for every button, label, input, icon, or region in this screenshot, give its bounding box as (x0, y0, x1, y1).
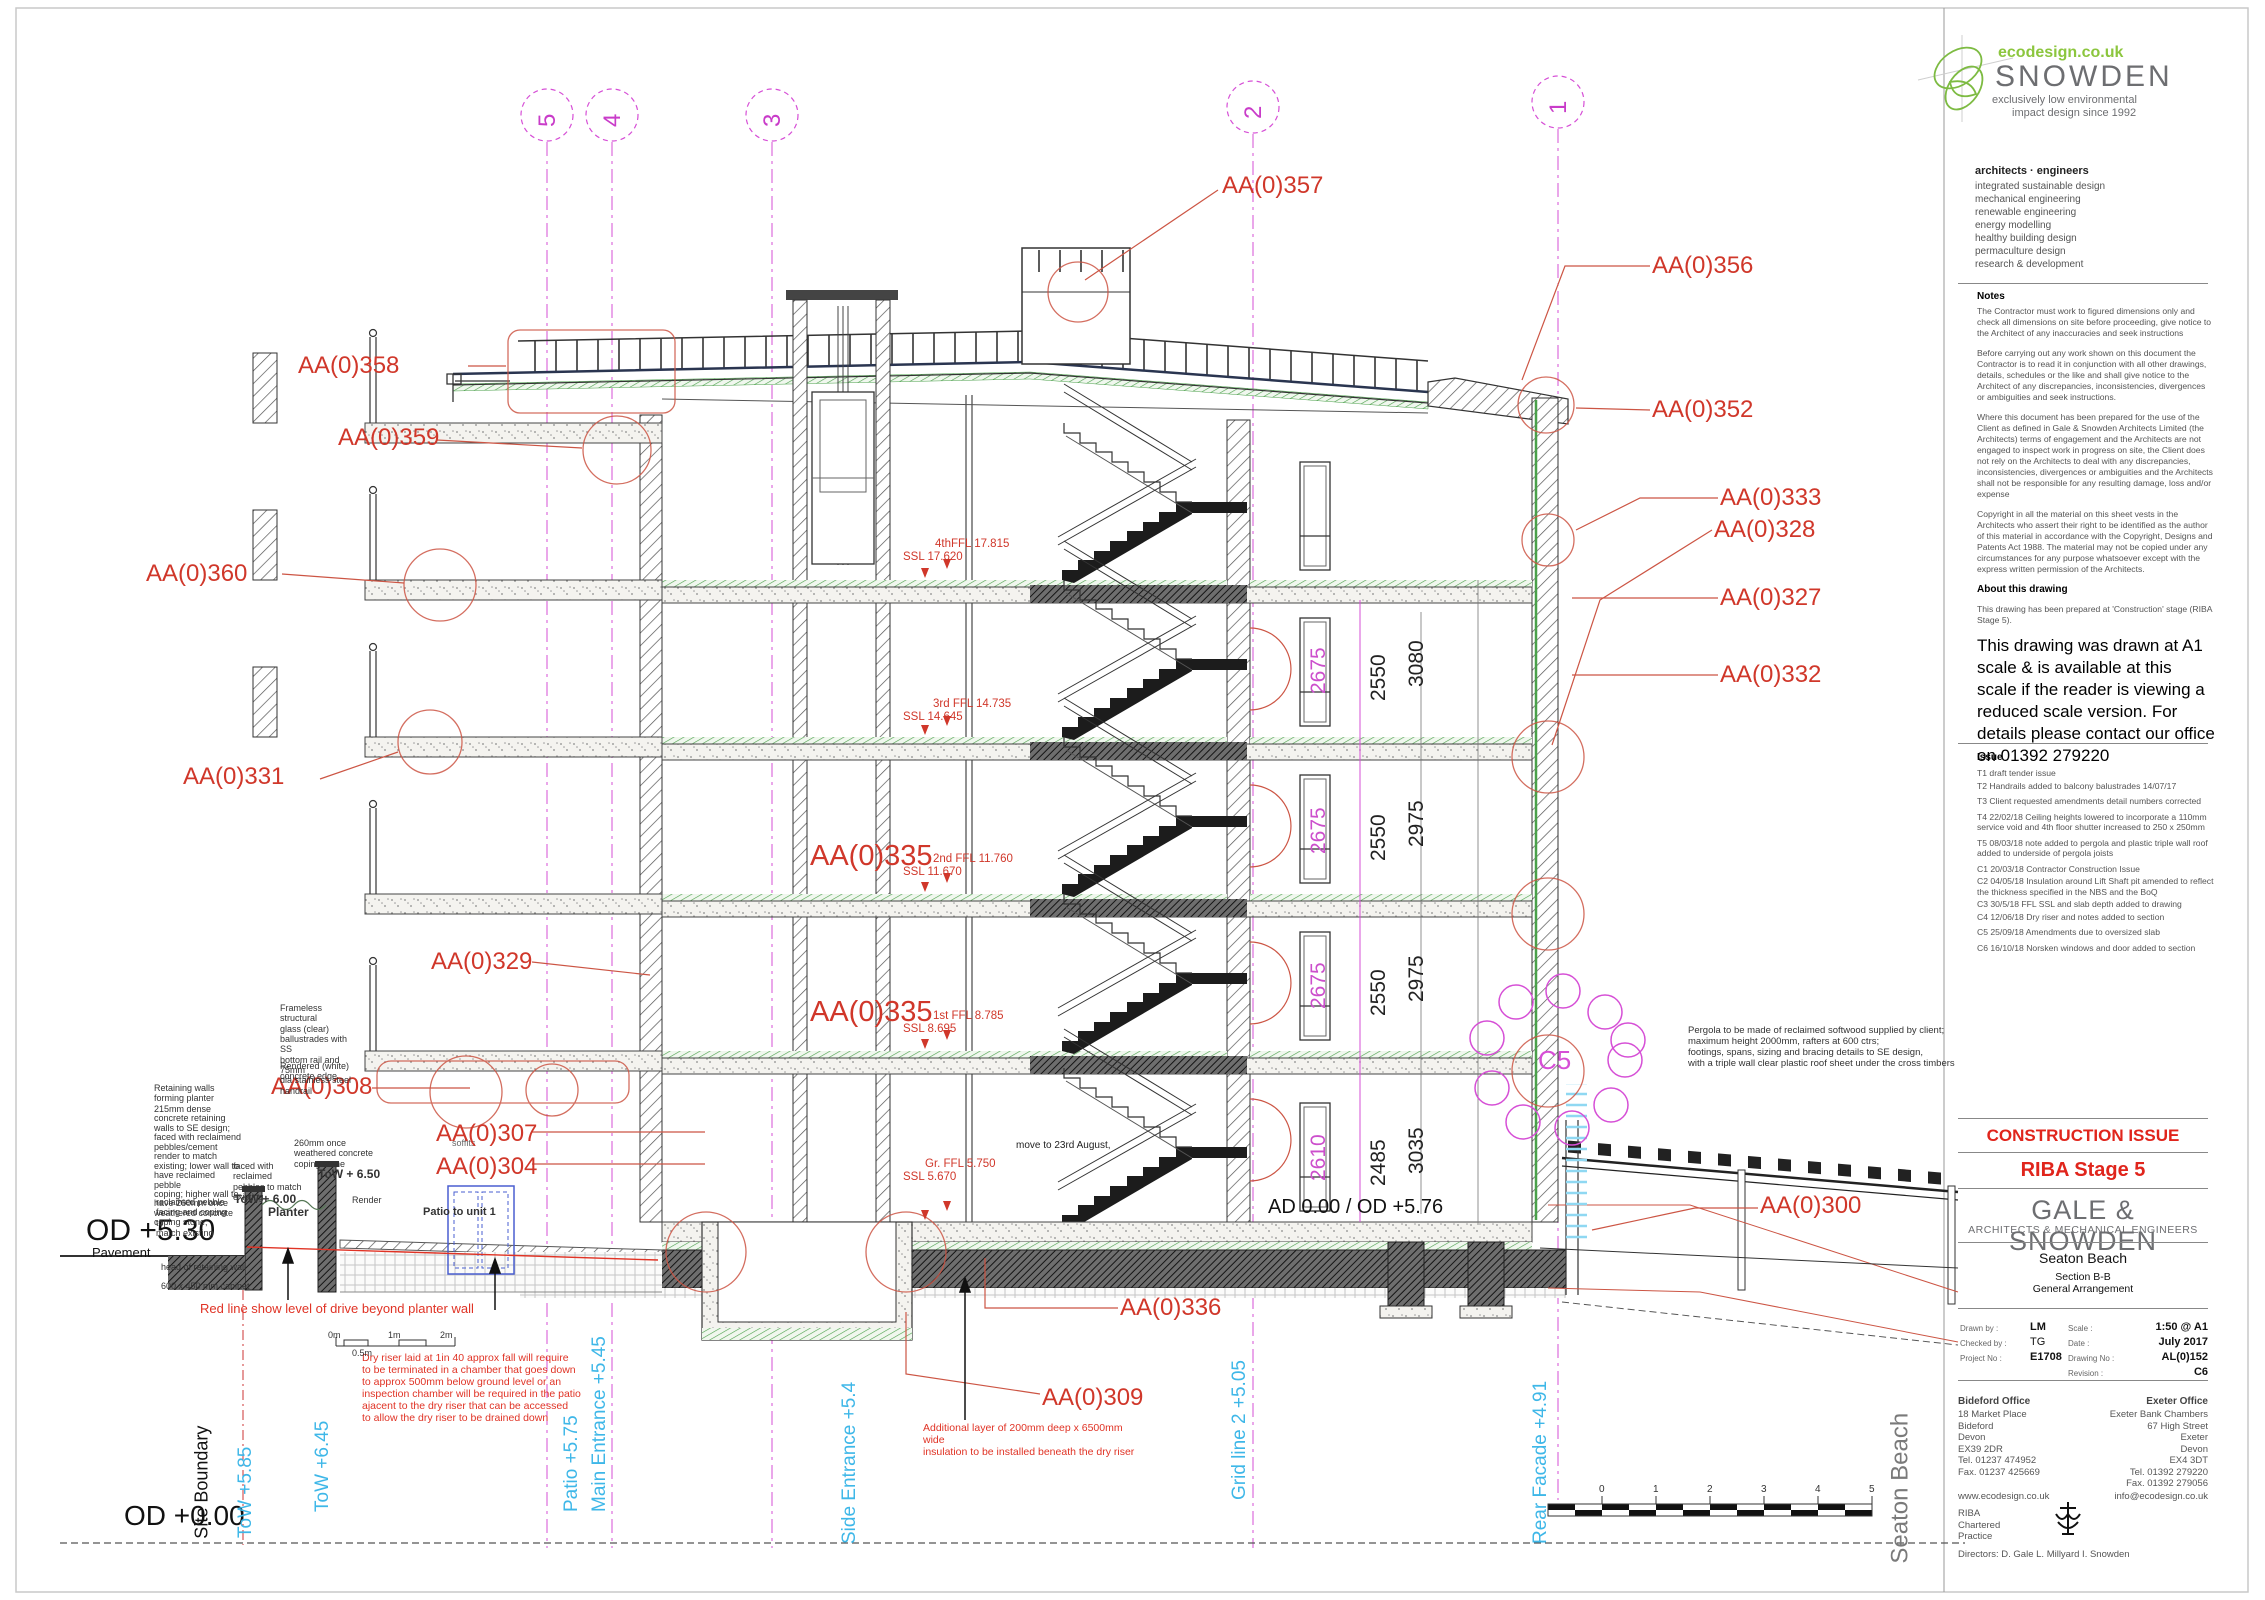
level-ad-od: AD 0.00 / OD +5.76 (1268, 1196, 1443, 1219)
label-site-boundary: Site Boundary (191, 1426, 212, 1539)
dim-f2-2975: 2975 (1406, 955, 1428, 1002)
exeter-office-name: Exeter Office (2088, 1396, 2208, 1408)
grid-label-3: 3 (759, 114, 786, 127)
issue-item: T2 Handrails added to balcony balustrade… (1977, 781, 2217, 792)
revision-cloud-label: C5 (1538, 1046, 1571, 1076)
logo-tagline2: impact design since 1992 (2012, 107, 2136, 120)
notes-p3: Where this document has been prepared fo… (1977, 412, 2215, 500)
scalebar-small-0: 0m (328, 1330, 341, 1340)
issue-item: C6 16/10/18 Norsken windows and door add… (1977, 943, 2217, 954)
directors: Directors: D. Gale L. Millyard I. Snowde… (1958, 1550, 2130, 1561)
date-label: Date : (2068, 1339, 2089, 1348)
floor-slabs (365, 423, 1532, 1074)
note-move: move to 23rd August, (1016, 1140, 1111, 1152)
firm-subtitle: ARCHITECTS & MECHANICAL ENGINEERS (1958, 1224, 2208, 1236)
level-ssl2: SSL 11.670 (903, 866, 962, 879)
svg-text:2: 2 (1707, 1484, 1713, 1495)
grid-label-1: 1 (1545, 101, 1572, 114)
dim-g-2485: 2485 (1368, 1139, 1390, 1186)
note-tow650: ToW + 6.50 (318, 1168, 380, 1182)
sidebar-rule (1958, 1308, 2208, 1309)
issue-item: C1 20/03/18 Contractor Construction Issu… (1977, 864, 2217, 875)
exeter-office-lines: Exeter Bank Chambers 67 High Street Exet… (2088, 1409, 2208, 1490)
scalebar-small-2: 2m (440, 1330, 453, 1340)
level-ssl4: SSL 17.620 (903, 551, 963, 564)
callout-aa336: AA(0)336 (1120, 1294, 1221, 1322)
callout-aa300: AA(0)300 (1760, 1192, 1861, 1220)
level-ssl3: SSL 14.645 (903, 711, 963, 724)
notes-p4: Copyright in all the material on this sh… (1977, 509, 2215, 575)
dry-riser (958, 395, 978, 1240)
stairs (1058, 384, 1247, 1228)
callout-aa352: AA(0)352 (1652, 396, 1753, 424)
services-heading: architects · engineers (1975, 165, 2089, 178)
scalebar-small-05: 0.5m (352, 1348, 372, 1358)
project-no-value: E1708 (2030, 1351, 2062, 1364)
issue-list: T1 draft tender issue T2 Handrails added… (1977, 768, 2217, 953)
checked-by-value: TG (2030, 1336, 2045, 1349)
service-item-1: mechanical engineering (1975, 194, 2081, 206)
dim-f3-2550: 2550 (1368, 814, 1390, 861)
grid-label-2: 2 (1240, 106, 1267, 119)
note-pergola: Pergola to be made of reclaimed softwood… (1688, 1026, 1978, 1070)
note-cabinet: 600 x 450 mm cabinet (161, 1281, 250, 1291)
revision-value: C6 (2130, 1366, 2208, 1379)
dim-g-3035: 3035 (1406, 1127, 1428, 1174)
note-headwall: head of retaining wall (161, 1262, 246, 1272)
svg-text:1: 1 (1653, 1484, 1659, 1495)
note-frameless: Frameless structural glass (clear) ballu… (280, 1003, 360, 1096)
note-retaining: Retaining walls forming planter (154, 1083, 234, 1104)
lift-shaft (786, 290, 898, 1240)
level-sslg: SSL 5.670 (903, 1171, 956, 1184)
label-tow585: ToW +5.85 (236, 1447, 256, 1538)
drawing-sheet: 5 4 3 2 1 (0, 0, 2265, 1600)
callout-aa331: AA(0)331 (183, 763, 284, 791)
level-ffl1: 1st FFL 8.785 (933, 1010, 1004, 1023)
dim-f2-2675: 2675 (1308, 962, 1330, 1009)
issue-item: C2 04/05/18 Insulation around Lift Shaft… (1977, 876, 2217, 897)
project-no-label: Project No : (1960, 1354, 2002, 1363)
level-od000: OD +0.00 (124, 1500, 245, 1532)
callout-aa360: AA(0)360 (146, 560, 247, 588)
level-ffl4: 4thFFL 17.815 (935, 538, 1009, 551)
bideford-office-lines: 18 Market Place Bideford Devon EX39 2DR … (1958, 1409, 2040, 1478)
callout-aa357: AA(0)357 (1222, 172, 1323, 200)
callout-aa356: AA(0)356 (1652, 252, 1753, 280)
logo-tagline1: exclusively low environmental (1992, 94, 2137, 107)
insulation-marks (1566, 1084, 1592, 1240)
callout-aa359: AA(0)359 (338, 424, 439, 452)
sidebar-rule (1958, 1380, 2208, 1381)
logo-name: SNOWDEN (1995, 60, 2173, 95)
dim-f4-3080: 3080 (1406, 640, 1428, 687)
callout-circles (377, 262, 1584, 1292)
note-pebble: reclaimed pebble facing and coping to ma… (156, 1197, 236, 1238)
sidebar-rule (1958, 1118, 2208, 1119)
email: info@ecodesign.co.uk (2088, 1492, 2208, 1503)
label-side-entrance: Side Entrance +5.4 (840, 1382, 860, 1544)
note-drive-level: Red line show level of drive beyond plan… (200, 1302, 474, 1317)
scalebar-small-1: 1m (388, 1330, 401, 1340)
about-large-text: This drawing was drawn at A1 scale & is … (1977, 635, 2215, 767)
issue-item: C3 30/5/18 FFL SSL and slab depth added … (1977, 899, 2217, 910)
callout-aa358: AA(0)358 (298, 352, 399, 380)
date-value: July 2017 (2130, 1336, 2208, 1349)
drawing-no-value: AL(0)152 (2130, 1351, 2208, 1364)
scale-label: Scale : (2068, 1324, 2092, 1333)
label-tow645: ToW +6.45 (313, 1421, 333, 1512)
level-fflg: Gr. FFL 5.750 (925, 1158, 996, 1171)
sidebar-rule (1958, 1242, 2208, 1243)
notes-p1: The Contractor must work to figured dime… (1977, 306, 2215, 339)
service-item-5: permaculture design (1975, 246, 2066, 258)
dim-g-2610: 2610 (1308, 1134, 1330, 1181)
drawn-by-value: LM (2030, 1321, 2046, 1334)
service-item-3: energy modelling (1975, 220, 2051, 232)
sheet-border (16, 8, 2248, 1592)
dim-f3-2675: 2675 (1308, 807, 1330, 854)
level-arrows (921, 559, 951, 1220)
planter-wall-high (318, 1165, 336, 1292)
issue-item: C4 12/06/18 Dry riser and notes added to… (1977, 912, 2217, 923)
issue-item: T4 22/02/18 Ceiling heights lowered to i… (1977, 812, 2217, 833)
grid-label-4: 4 (599, 114, 626, 127)
sidebar-rule (1958, 1188, 2208, 1189)
svg-text:0: 0 (1599, 1484, 1605, 1495)
dim-f3-2975: 2975 (1406, 800, 1428, 847)
label-rear-facade: Rear Facade +4.91 (1531, 1381, 1551, 1544)
issue-item: T5 08/03/18 note added to pergola and pl… (1977, 838, 2217, 859)
issue-item: T3 Client requested amendments detail nu… (1977, 796, 2217, 807)
note-planter: Planter (268, 1206, 309, 1220)
note-insulation: Additional layer of 200mm deep x 6500mm … (923, 1422, 1143, 1458)
drawing-no-label: Drawing No : (2068, 1354, 2114, 1363)
about-heading: About this drawing (1977, 584, 2215, 595)
riba-crest-icon (2056, 1502, 2080, 1534)
roof (447, 248, 1568, 424)
issue-item: C5 25/09/18 Amendments due to oversized … (1977, 927, 2217, 938)
drawing-title-1: Section B-B (1958, 1271, 2208, 1283)
label-grid-line-2: Grid line 2 +5.05 (1230, 1360, 1250, 1500)
service-item-0: integrated sustainable design (1975, 181, 2105, 193)
callout-aa328: AA(0)328 (1714, 516, 1815, 544)
riba-chartered: RIBA Chartered Practice (1958, 1508, 2000, 1543)
notes-body: The Contractor must work to figured dime… (1977, 306, 2215, 776)
dim-f2-2550: 2550 (1368, 969, 1390, 1016)
project-name: Seaton Beach (1958, 1250, 2208, 1266)
dim-f4-2675: 2675 (1308, 647, 1330, 694)
notes-heading: Notes (1977, 291, 2005, 303)
scale-value: 1:50 @ A1 (2130, 1321, 2208, 1334)
service-item-4: healthy building design (1975, 233, 2077, 245)
checked-by-label: Checked by : (1960, 1339, 2007, 1348)
note-render: Render (352, 1195, 382, 1205)
sidebar-rule (1958, 1152, 2208, 1153)
about-text: This drawing has been prepared at 'Const… (1977, 604, 2215, 626)
note-dry-riser: Dry riser laid at 1in 40 approx fall wil… (362, 1352, 582, 1424)
level-ffl3: 3rd FFL 14.735 (933, 698, 1011, 711)
note-patio-unit: Patio to unit 1 (423, 1206, 496, 1219)
pergola (1540, 1084, 1958, 1345)
svg-text:3: 3 (1761, 1484, 1767, 1495)
left-wall (640, 415, 662, 1222)
section-drawing: 5 4 3 2 1 (0, 0, 2265, 1600)
note-rendered: Rendered (white) concrete edge (280, 1061, 360, 1082)
sidebar-rule (1958, 743, 2208, 744)
callout-aa332: AA(0)332 (1720, 661, 1821, 689)
notes-p2: Before carrying out any work shown on th… (1977, 348, 2215, 403)
scalebar-big: 01 23 45 (1548, 1484, 1875, 1516)
label-main-entrance: Main Entrance +5.45 (590, 1336, 610, 1512)
sidebar-rule (1958, 283, 2208, 284)
label-patio: Patio +5.75 (562, 1415, 582, 1512)
callout-aa329: AA(0)329 (431, 948, 532, 976)
callout-aa327: AA(0)327 (1720, 584, 1821, 612)
riba-stage: RIBA Stage 5 (1958, 1159, 2208, 1182)
service-item-6: research & development (1975, 259, 2083, 271)
callout-aa307: AA(0)307 (436, 1120, 537, 1148)
level-ssl1: SSL 8.695 (903, 1023, 956, 1036)
callout-aa333: AA(0)333 (1720, 484, 1821, 512)
dim-f4-2550: 2550 (1368, 654, 1390, 701)
svg-text:4: 4 (1815, 1484, 1821, 1495)
issue-heading: Issue (1977, 752, 2003, 764)
label-seaton-beach: Seaton Beach (1886, 1413, 1914, 1564)
issue-item: T1 draft tender issue (1977, 768, 2217, 779)
callout-aa309: AA(0)309 (1042, 1384, 1143, 1412)
svg-text:5: 5 (1869, 1484, 1875, 1495)
bideford-office-name: Bideford Office (1958, 1396, 2030, 1408)
grid-bubbles (521, 76, 1584, 141)
level-pavement: Pavement (92, 1246, 151, 1261)
website: www.ecodesign.co.uk (1958, 1492, 2049, 1503)
drawing-title-2: General Arrangement (1958, 1283, 2208, 1295)
party-wall-stubs (253, 353, 277, 737)
grid-label-5: 5 (534, 114, 561, 127)
drawn-by-label: Drawn by : (1960, 1324, 1998, 1333)
revision-label: Revision : (2068, 1369, 2103, 1378)
status-construction-issue: CONSTRUCTION ISSUE (1958, 1126, 2208, 1146)
callout-aa304: AA(0)304 (436, 1153, 537, 1181)
level-ffl2: 2nd FFL 11.760 (933, 853, 1013, 866)
service-item-2: renewable engineering (1975, 207, 2076, 219)
